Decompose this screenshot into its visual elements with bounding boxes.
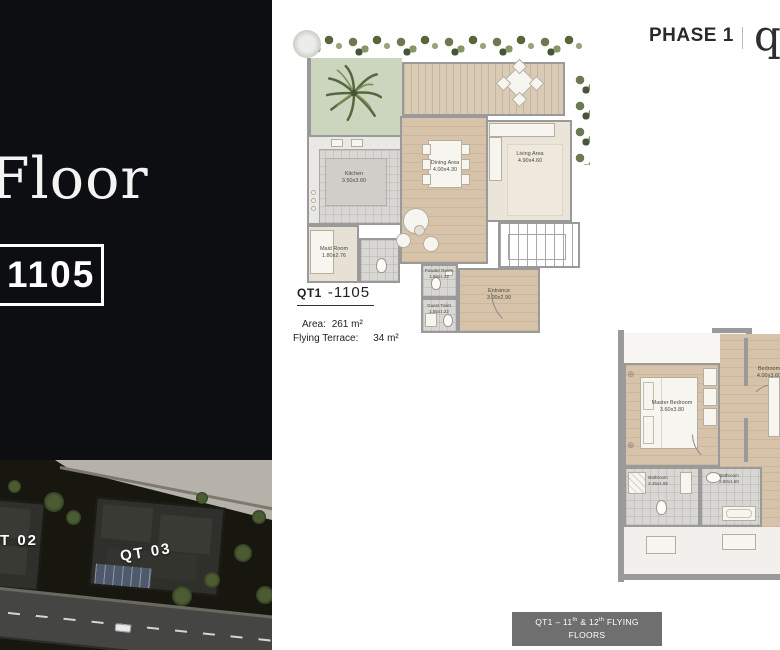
- wardrobe: [703, 388, 717, 406]
- planter: [722, 534, 756, 550]
- road: [0, 585, 272, 650]
- wall: [744, 338, 748, 386]
- wardrobe: [703, 408, 717, 426]
- unit-title: QT1-1105: [297, 284, 374, 306]
- room-label-bedroom: Bedroom 4.00x3.60: [757, 366, 780, 380]
- area-spec: Area: 261 m²: [302, 319, 363, 330]
- wall: [618, 574, 780, 580]
- tree-icon: [252, 510, 266, 524]
- sofa: [489, 137, 502, 181]
- dining-chair: [422, 144, 431, 155]
- header-divider: [742, 27, 743, 49]
- tree-icon: [196, 492, 208, 504]
- room-label-living: Living Area 4.90x4.60: [516, 151, 543, 165]
- wardrobe: [703, 368, 717, 386]
- room-label-entrance: Entrance 3.00x2.90: [487, 288, 511, 302]
- unit-suffix: -1105: [328, 284, 370, 301]
- caption-line1: QT1 – 11th & 12th FLYING: [512, 616, 662, 629]
- room-label-dining: Dining Area 4.00x4.30: [431, 160, 459, 174]
- toilet-icon: [376, 258, 387, 273]
- brand-logo-fragment: q: [754, 11, 780, 60]
- bed: [768, 377, 780, 437]
- dining-chair: [461, 159, 470, 170]
- toilet-icon: [443, 314, 453, 327]
- tree-icon: [234, 544, 252, 562]
- car-icon: [115, 623, 132, 633]
- tree-icon: [8, 480, 21, 493]
- road-center-line: [0, 609, 272, 645]
- tree-icon: [44, 492, 64, 512]
- corridor: [762, 467, 780, 527]
- tree-icon: [66, 510, 81, 525]
- floor-title: Floor: [0, 146, 149, 212]
- dining-chair: [461, 144, 470, 155]
- tree-icon: [256, 586, 272, 604]
- pillow: [643, 416, 654, 444]
- phase-label: PHASE 1: [649, 25, 734, 47]
- room-dining: [400, 116, 488, 264]
- sofa: [489, 123, 555, 137]
- room-label-powder: Powder Room 1.55x1.22: [425, 268, 454, 280]
- toilet-icon: [656, 500, 667, 515]
- hedge: [297, 32, 583, 58]
- stair-rail: [508, 234, 566, 260]
- burner-icon: [311, 206, 316, 211]
- dining-chair: [422, 159, 431, 170]
- shower: [425, 313, 437, 327]
- room-label-bathroom-2: Bathroom 2.60x1.60: [719, 473, 739, 485]
- site-map: T 02 QT 03: [0, 460, 272, 650]
- burner-icon: [311, 190, 316, 195]
- palm-tree-icon: [323, 62, 385, 124]
- tree-icon: [172, 586, 192, 606]
- room-label-maid: Maid Room 1.80x2.76: [320, 246, 348, 260]
- site-label-qt02: T 02: [0, 532, 38, 549]
- burner-icon: [311, 198, 316, 203]
- hedge: [572, 70, 590, 165]
- wall: [744, 418, 748, 462]
- caption-line2: FLOORS: [512, 629, 662, 642]
- shower: [628, 472, 646, 494]
- kitchen-stove: [351, 139, 363, 147]
- floorplan-bedroom-level: ⊕ ⊕ Master Bedroom 3.60x3.80 Bedroom 4.0…: [602, 322, 780, 614]
- lounge-chair: [423, 236, 439, 252]
- planter: [646, 536, 676, 554]
- bathtub-inner: [726, 509, 752, 518]
- coffee-table: [414, 225, 425, 236]
- staircase: [498, 222, 580, 268]
- vanity: [680, 472, 692, 494]
- unit-number: 1105: [7, 250, 95, 300]
- terrace-spec: Flying Terrace: 34 m²: [293, 333, 399, 344]
- spotlight-icon: ⊕: [627, 440, 635, 451]
- room-label-guest-toilet: Guest Toilet 1.55x1.22: [427, 303, 451, 315]
- caption-box: QT1 – 11th & 12th FLYING FLOORS: [512, 612, 662, 646]
- bathtub: [722, 506, 756, 521]
- unit-code: QT1: [297, 286, 322, 300]
- kitchen-counter: [309, 149, 320, 223]
- lounge-chair: [396, 233, 411, 248]
- unit-number-box: 1105: [0, 244, 104, 306]
- roof-detail: [101, 504, 154, 542]
- dining-chair: [461, 174, 470, 185]
- room-label-bathroom-1: Bathroom 2.45x1.65: [648, 475, 668, 487]
- kitchen-sink: [331, 139, 343, 147]
- bush-icon: [293, 30, 321, 58]
- spotlight-icon: ⊕: [627, 369, 635, 380]
- room-label-master: Master Bedroom 3.60x3.80: [652, 400, 693, 414]
- flying-terrace-deck: [402, 62, 565, 116]
- tree-icon: [204, 572, 220, 588]
- left-panel: Floor 1105: [0, 0, 272, 460]
- room-label-kitchen: Kitchen 3.50x3.60: [342, 171, 366, 185]
- dining-chair: [422, 174, 431, 185]
